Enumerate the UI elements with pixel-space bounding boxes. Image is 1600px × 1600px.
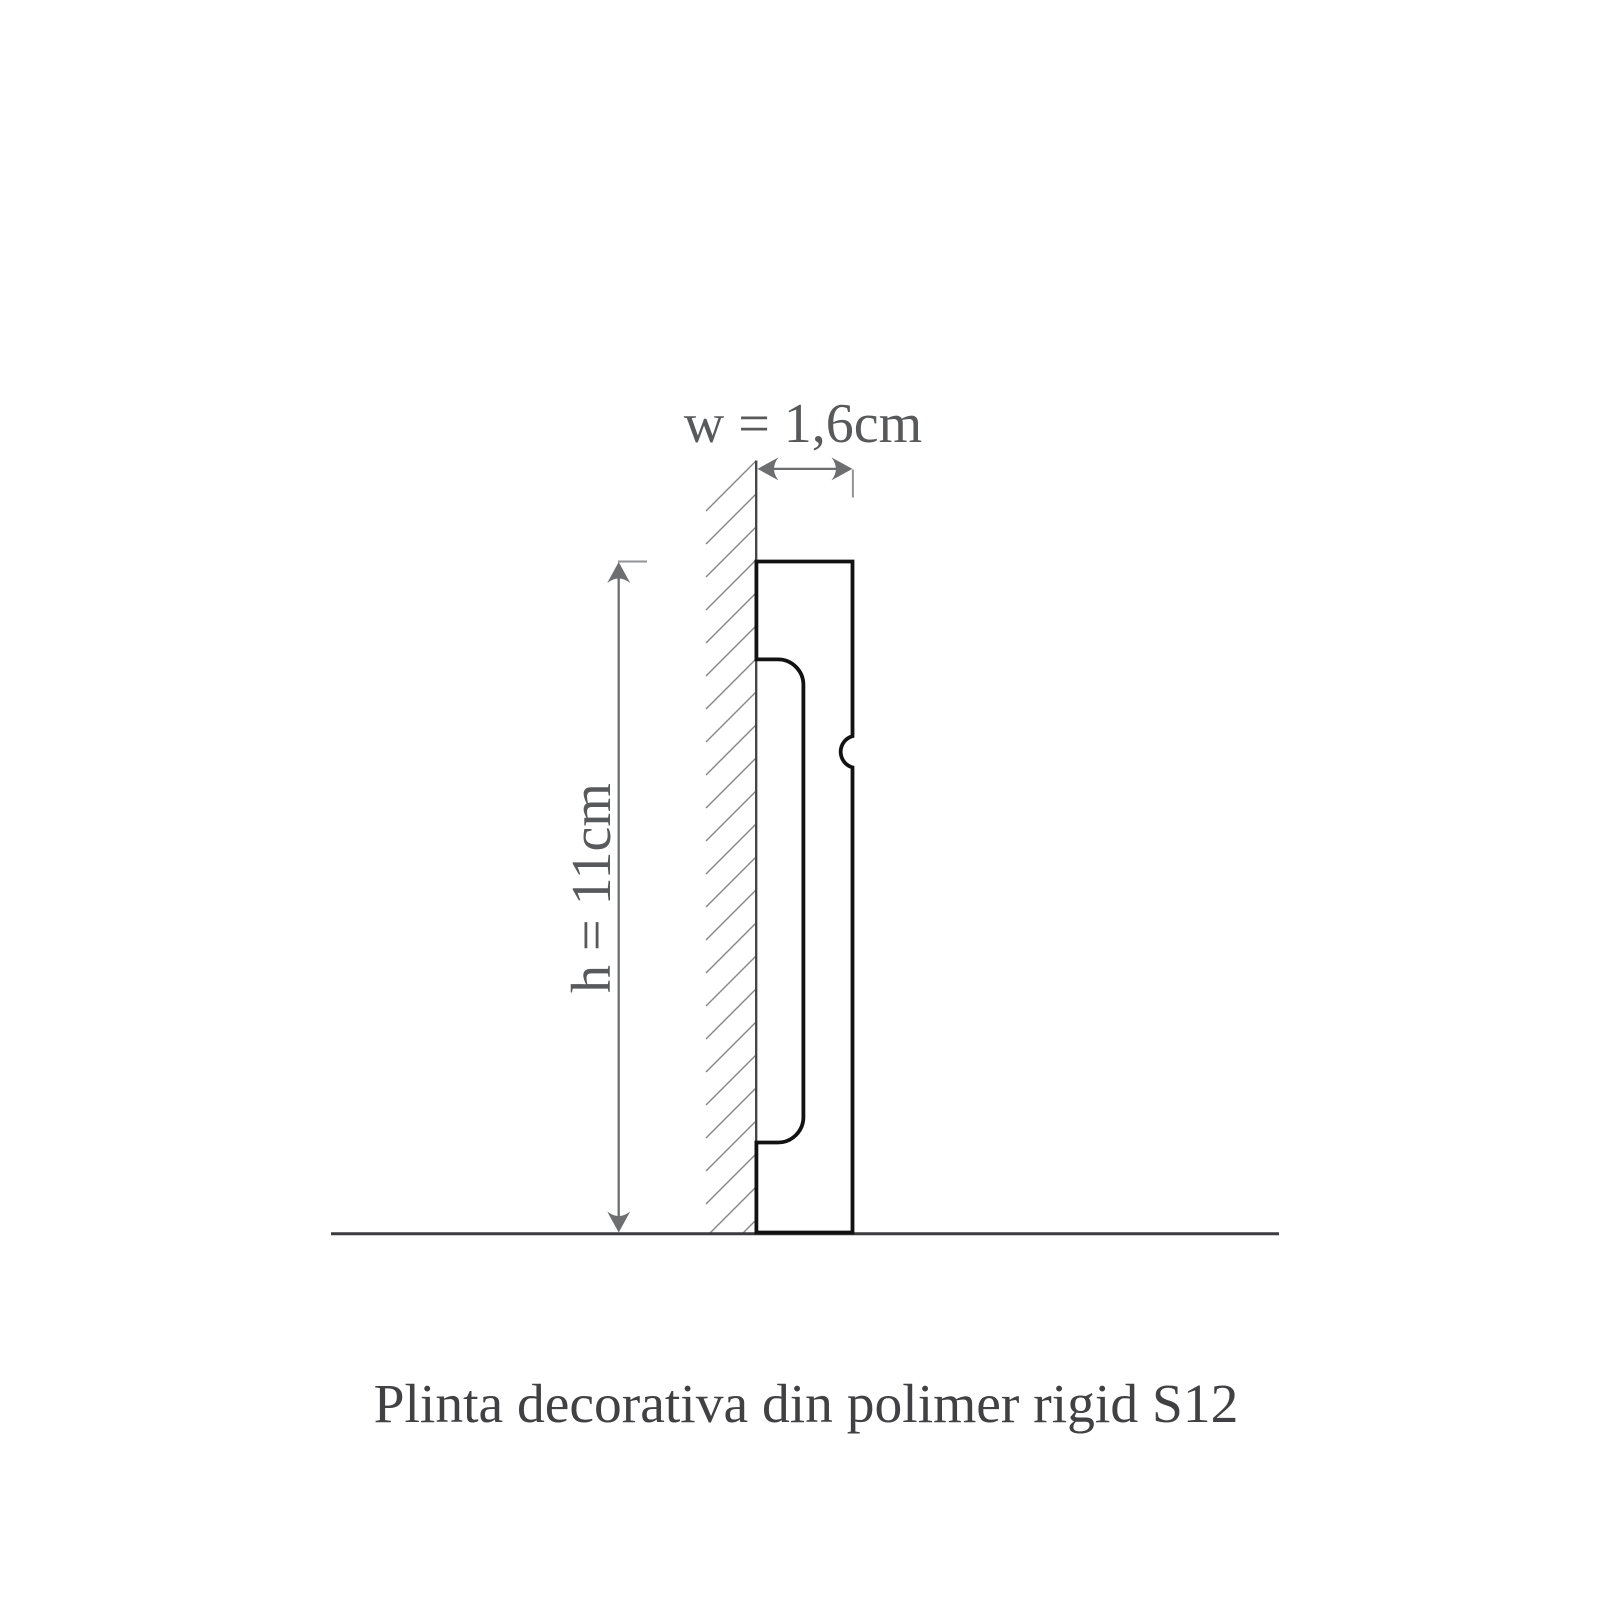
svg-text:w = 1,6cm: w = 1,6cm — [684, 393, 922, 455]
svg-text:h = 11cm: h = 11cm — [561, 783, 623, 993]
svg-text:Plinta decorativa din polimer: Plinta decorativa din polimer rigid S12 — [374, 1374, 1239, 1435]
